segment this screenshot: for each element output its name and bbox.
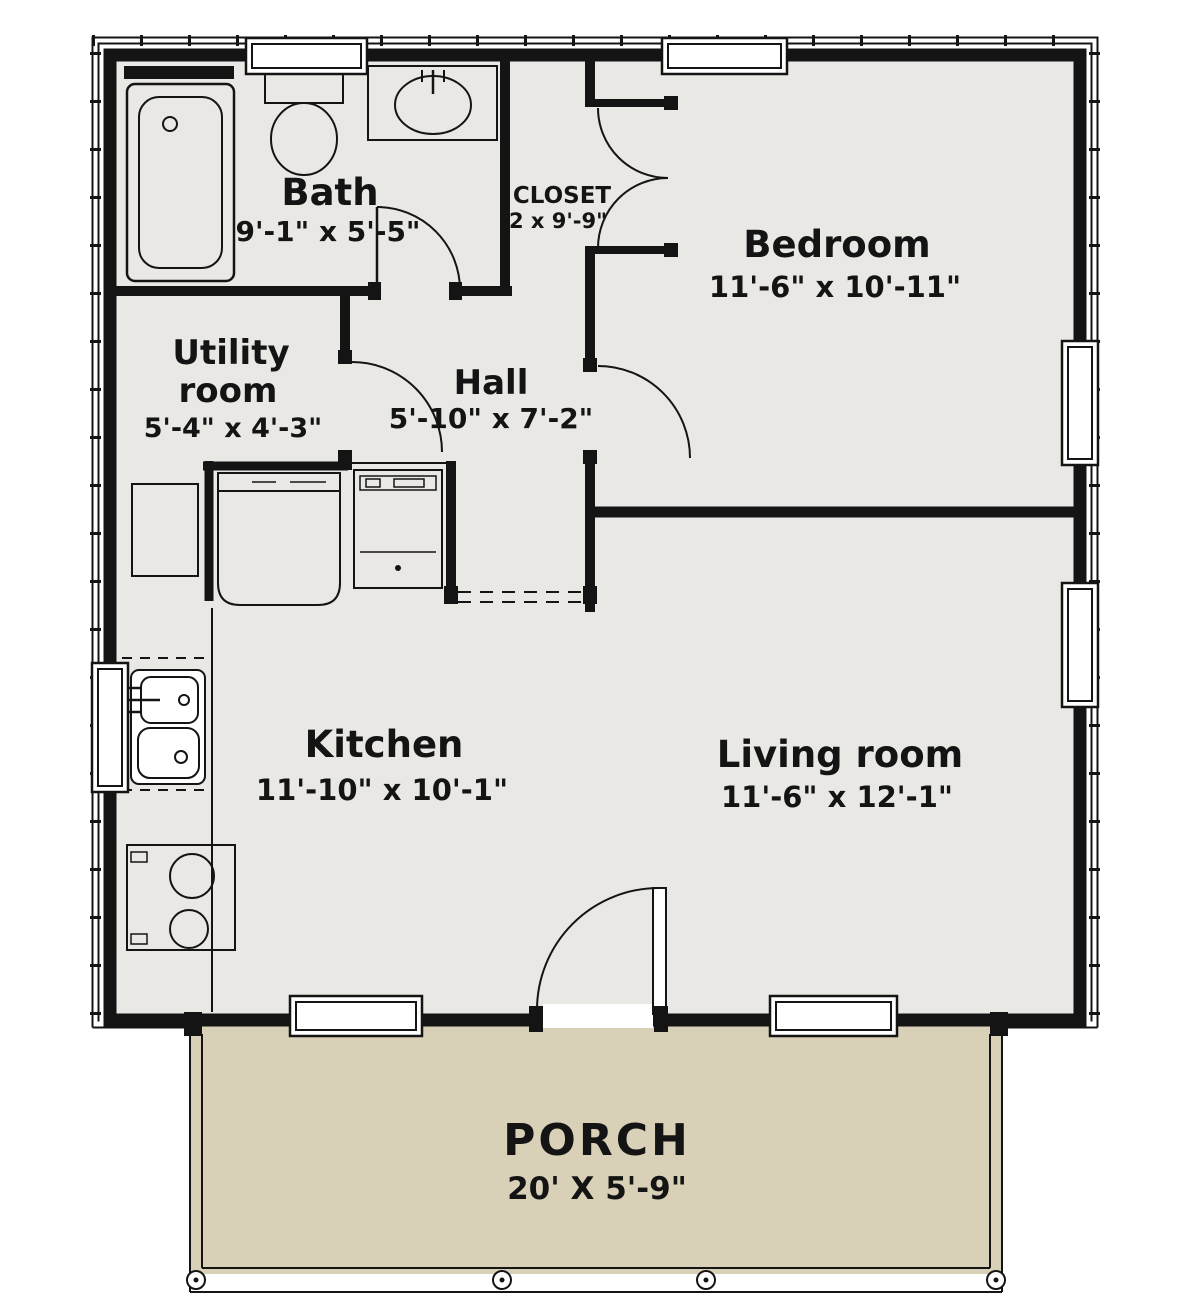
utility-label-line1: Utility (172, 333, 289, 373)
bath-label: Bath (281, 171, 378, 214)
closet-dims-label: 2 x 9'-9" (509, 209, 607, 233)
jamb-closet-top (664, 96, 678, 110)
floor-plan-page: Bath 9'-1" x 5'-5" CLOSET 2 x 9'-9" Bedr… (0, 0, 1200, 1309)
jamb-front-right (654, 1006, 668, 1032)
dishwasher-dot (395, 565, 401, 571)
window-left-kitchen (92, 663, 128, 792)
bath-dims-label: 9'-1" x 5'-5" (235, 215, 420, 248)
hall-dims-label: 5'-10" x 7'-2" (389, 402, 594, 435)
utility-label-line2: room (179, 371, 278, 411)
living-room-label: Living room (717, 733, 963, 776)
kitchen-label: Kitchen (305, 723, 464, 766)
front-door-leaf (653, 888, 666, 1014)
jamb-bedroom-bottom (583, 450, 597, 464)
jamb-opening-right (583, 586, 597, 604)
kitchen-sink (126, 670, 205, 784)
floor-plan-drawing: Bath 9'-1" x 5'-5" CLOSET 2 x 9'-9" Bedr… (0, 0, 1200, 1309)
utility-dims-label: 5'-4" x 4'-3" (144, 413, 322, 444)
window-top-bedroom (662, 38, 787, 74)
porch-label: PORCH (503, 1115, 691, 1166)
bedroom-dims-label: 11'-6" x 10'-11" (709, 270, 961, 304)
porch-anchor-left (184, 1012, 202, 1036)
window-right-living (1062, 583, 1098, 707)
porch-anchor-right (990, 1012, 1008, 1036)
closet-label: CLOSET (513, 183, 612, 209)
jamb-front-left (529, 1006, 543, 1032)
bedroom-label: Bedroom (743, 223, 930, 266)
porch-dims-label: 20' X 5'-9" (507, 1171, 687, 1207)
window-top-bath (246, 38, 367, 74)
window-bottom-living (770, 996, 897, 1036)
jamb-bedroom-top (583, 358, 597, 372)
jamb-bath-left (368, 282, 381, 300)
jamb-utility-bottom (338, 450, 352, 470)
jamb-opening-left (444, 586, 458, 604)
bath-shelf (124, 66, 234, 79)
window-right-bedroom (1062, 341, 1098, 465)
jamb-utility-top (338, 350, 352, 364)
window-bottom-kitchen (290, 996, 422, 1036)
hall-label: Hall (454, 363, 529, 403)
jamb-closet-bottom (664, 243, 678, 257)
kitchen-dims-label: 11'-10" x 10'-1" (256, 773, 508, 807)
living-room-dims-label: 11'-6" x 12'-1" (721, 780, 953, 814)
